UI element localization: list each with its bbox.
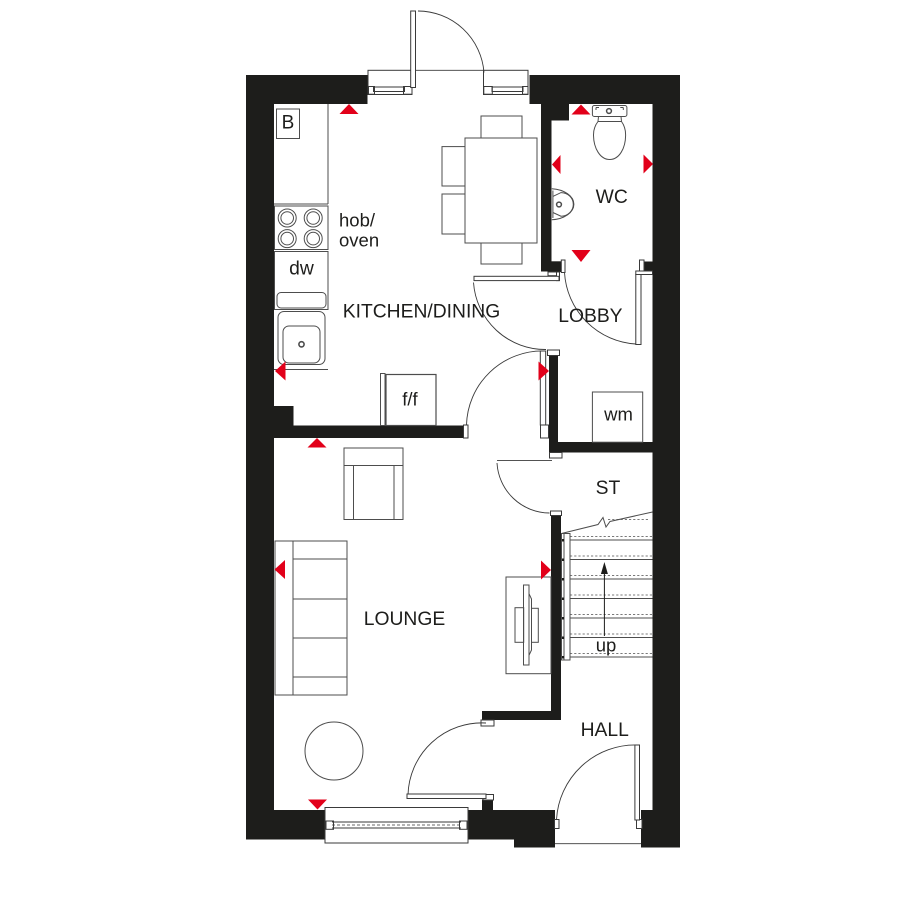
svg-text:LOBBY: LOBBY bbox=[558, 306, 622, 327]
svg-text:hob/: hob/ bbox=[339, 210, 376, 231]
svg-text:f/f: f/f bbox=[402, 389, 418, 410]
svg-text:oven: oven bbox=[339, 230, 379, 251]
svg-text:dw: dw bbox=[289, 259, 314, 280]
svg-text:ST: ST bbox=[596, 478, 621, 499]
svg-text:HALL: HALL bbox=[581, 720, 630, 741]
svg-text:KITCHEN/DINING: KITCHEN/DINING bbox=[343, 302, 500, 323]
svg-text:LOUNGE: LOUNGE bbox=[364, 609, 446, 630]
svg-text:B: B bbox=[282, 113, 295, 134]
svg-text:WC: WC bbox=[596, 187, 628, 208]
svg-text:up: up bbox=[596, 635, 617, 656]
svg-text:wm: wm bbox=[603, 404, 633, 425]
